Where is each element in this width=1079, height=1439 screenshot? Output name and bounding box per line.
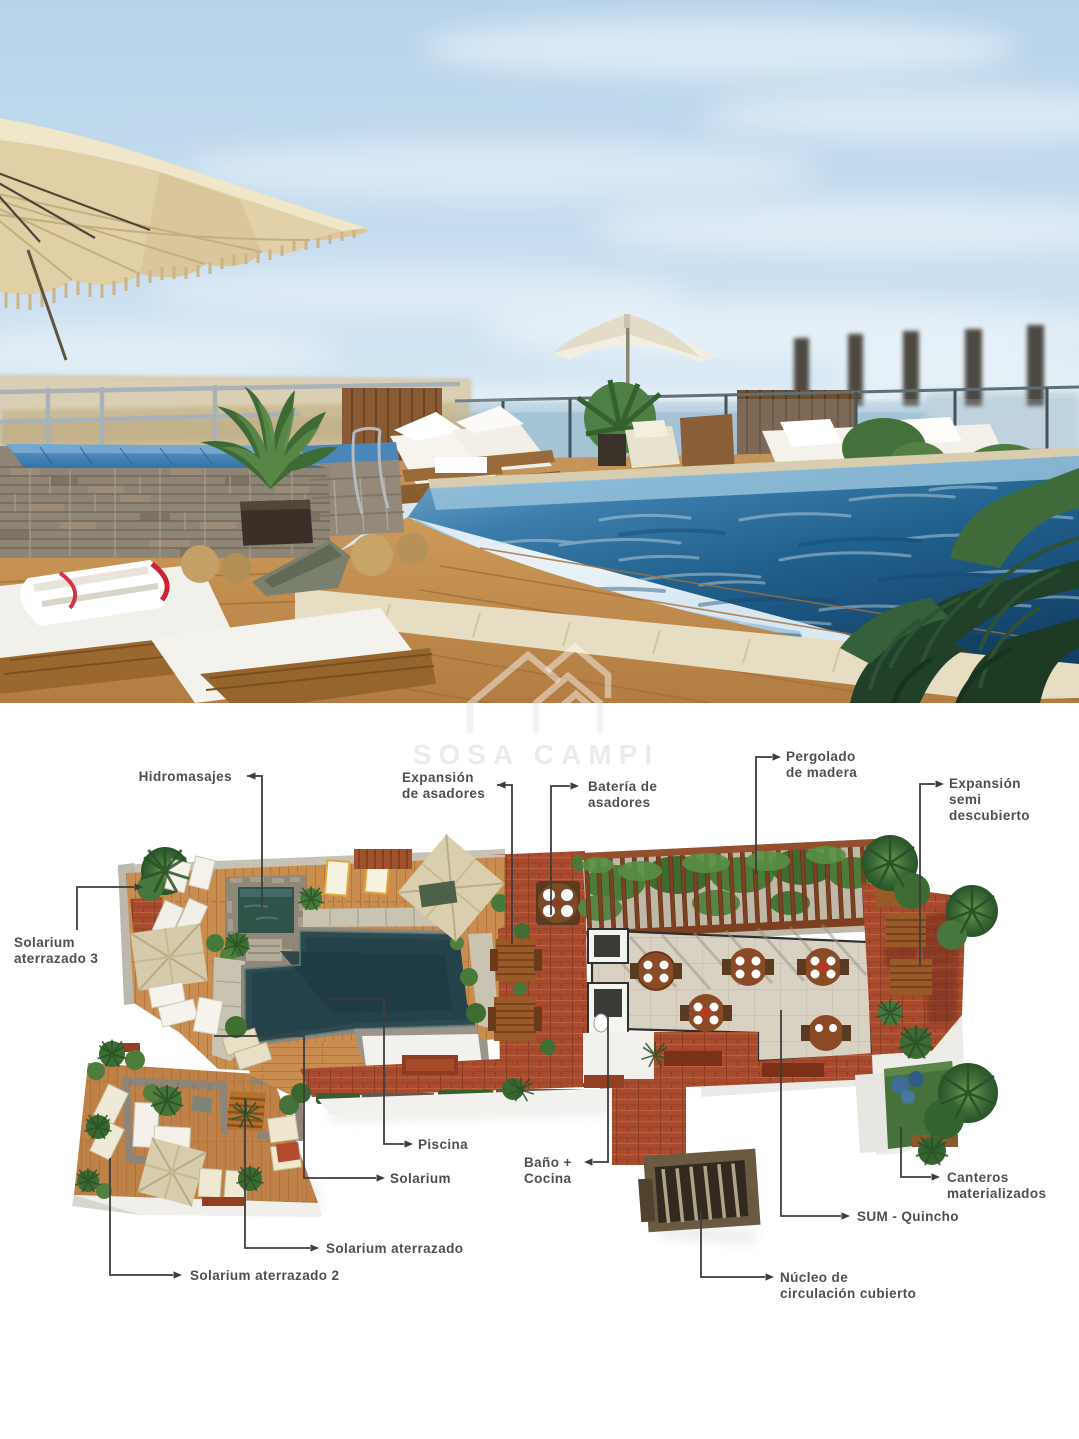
svg-text:descubierto: descubierto xyxy=(949,808,1030,823)
svg-text:Solarium aterrazado: Solarium aterrazado xyxy=(326,1241,463,1256)
svg-text:Solarium: Solarium xyxy=(390,1171,451,1186)
svg-text:Baño +: Baño + xyxy=(524,1155,572,1170)
svg-text:Expansión: Expansión xyxy=(949,776,1021,791)
svg-text:SUM - Quincho: SUM - Quincho xyxy=(857,1209,959,1224)
svg-text:Solarium: Solarium xyxy=(14,935,75,950)
svg-text:de asadores: de asadores xyxy=(402,786,485,801)
svg-text:Cocina: Cocina xyxy=(524,1171,572,1186)
svg-text:materializados: materializados xyxy=(947,1186,1046,1201)
svg-text:SOSA CAMPI: SOSA CAMPI xyxy=(413,739,659,770)
svg-text:asadores: asadores xyxy=(588,795,651,810)
svg-text:Pergolado: Pergolado xyxy=(786,749,856,764)
svg-text:circulación cubierto: circulación cubierto xyxy=(780,1286,916,1301)
svg-text:Hidromasajes: Hidromasajes xyxy=(139,769,232,784)
svg-text:Solarium aterrazado 2: Solarium aterrazado 2 xyxy=(190,1268,339,1283)
svg-text:Piscina: Piscina xyxy=(418,1137,468,1152)
svg-text:Batería de: Batería de xyxy=(588,779,657,794)
svg-text:de madera: de madera xyxy=(786,765,857,780)
svg-text:Núcleo de: Núcleo de xyxy=(780,1270,848,1285)
svg-text:Canteros: Canteros xyxy=(947,1170,1009,1185)
svg-text:semi: semi xyxy=(949,792,981,807)
svg-text:Expansión: Expansión xyxy=(402,770,474,785)
svg-text:aterrazado 3: aterrazado 3 xyxy=(14,951,98,966)
